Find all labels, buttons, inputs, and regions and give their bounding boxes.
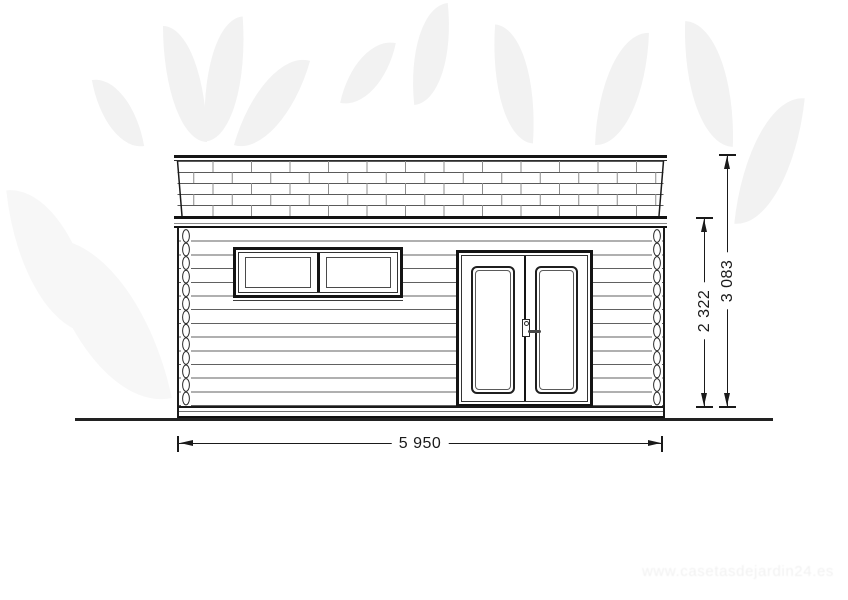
leaf-shape bbox=[595, 31, 649, 147]
door-lock-cylinder bbox=[524, 321, 529, 326]
dim-tick bbox=[661, 436, 663, 452]
leaf-shape bbox=[92, 73, 144, 153]
door-panel-left bbox=[471, 266, 515, 394]
leaf-shape bbox=[340, 34, 396, 111]
window-sill bbox=[233, 300, 403, 301]
corner-logs-left bbox=[181, 229, 191, 407]
fascia-trim-line bbox=[174, 223, 667, 224]
leaf-shape bbox=[734, 92, 804, 229]
dim-arrow-down bbox=[701, 393, 707, 406]
dim-arrow-up bbox=[724, 156, 730, 169]
roof-shingle-band bbox=[174, 161, 667, 216]
leaf-shape bbox=[487, 25, 541, 144]
door-panel-right bbox=[535, 266, 579, 394]
ground-line bbox=[75, 418, 773, 421]
door-handle bbox=[528, 330, 541, 333]
roof-fascia bbox=[174, 216, 667, 228]
window-inner-frame bbox=[238, 252, 398, 293]
leaf-shape bbox=[404, 3, 458, 105]
door-leaf-left bbox=[462, 256, 524, 401]
dim-tick bbox=[696, 406, 713, 408]
leaf-shape bbox=[234, 47, 310, 159]
dimension-width-label: 5 950 bbox=[392, 435, 449, 453]
corner-logs-right bbox=[652, 229, 662, 407]
dim-arrow-down bbox=[724, 393, 730, 406]
shingle-pattern bbox=[178, 161, 664, 216]
door-lock-plate bbox=[522, 319, 530, 337]
dim-arrow-up bbox=[701, 219, 707, 232]
dim-arrow-right bbox=[648, 440, 661, 446]
window-pane-right bbox=[317, 253, 398, 292]
leaf-shape bbox=[681, 21, 737, 147]
dimension-wall-height-label: 2 322 bbox=[696, 283, 714, 340]
leaf-shape bbox=[163, 26, 207, 142]
dim-arrow-left bbox=[180, 440, 193, 446]
door-leaf-right bbox=[524, 256, 588, 401]
base-trim-line bbox=[179, 411, 663, 412]
elevation-drawing: www.casetasdejardin24.es bbox=[0, 0, 848, 600]
watermark-url: www.casetasdejardin24.es bbox=[642, 563, 834, 580]
window-pane-left bbox=[239, 253, 317, 292]
dim-tick bbox=[177, 436, 179, 452]
window-frame bbox=[233, 247, 403, 298]
dim-tick bbox=[719, 406, 736, 408]
dimension-total-height-label: 3 083 bbox=[719, 253, 737, 310]
